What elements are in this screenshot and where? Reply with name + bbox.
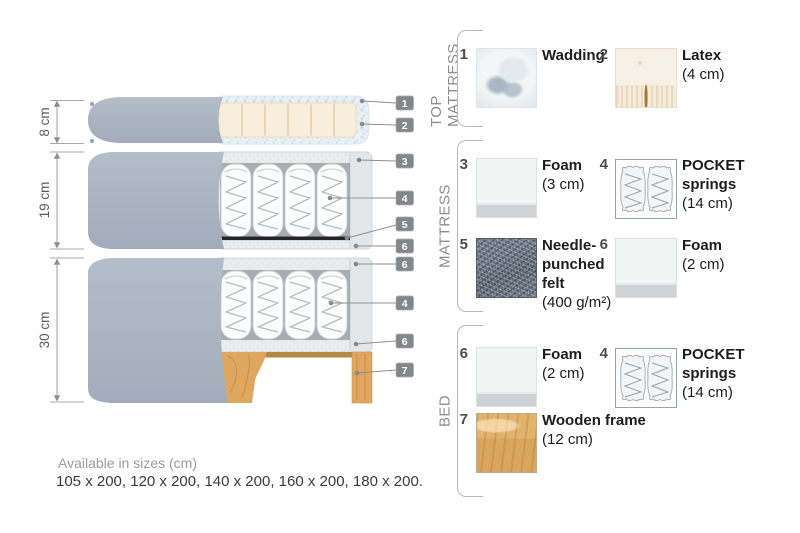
- pocket-springs-drawing: [616, 349, 676, 407]
- svg-text:6: 6: [402, 336, 408, 348]
- pocket-spring: [221, 164, 251, 237]
- legend-item-label: POCKET springs (14 cm): [682, 156, 762, 213]
- mattress-fabric: [88, 152, 224, 249]
- pocket-spring: [285, 164, 315, 237]
- legend-item-number: 6: [448, 345, 468, 362]
- legend-item-number: 5: [448, 236, 468, 253]
- callout-badge-6a: 6: [396, 239, 414, 253]
- wadding-swatch: [476, 48, 537, 108]
- legend-item-number: 1: [448, 46, 468, 63]
- pocket-springs-drawing: [616, 160, 676, 218]
- svg-text:7: 7: [402, 365, 408, 377]
- felt-swatch: [476, 238, 537, 298]
- svg-text:4: 4: [402, 298, 408, 310]
- legend-item-label: POCKET springs (14 cm): [682, 345, 762, 402]
- dimension-19cm: [50, 152, 84, 249]
- legend-item-number: 7: [448, 411, 468, 428]
- mattress-section: [88, 152, 372, 249]
- callout-badge-3: 3: [396, 154, 414, 168]
- wood-rail: [256, 352, 360, 358]
- svg-text:1: 1: [402, 98, 408, 110]
- pocket-spring: [253, 164, 283, 237]
- dimension-label-30cm: 30 cm: [37, 312, 52, 349]
- callout-badge-4b: 4: [396, 296, 414, 310]
- legend-item-number: 4: [588, 345, 608, 362]
- bed-cross-section-diagram: 8 cm 19 cm 30 cm: [0, 0, 440, 533]
- legend-item-label: Wooden frame (12 cm): [542, 411, 712, 449]
- callout-badge-7: 7: [396, 363, 414, 377]
- legend-item-label: Foam (2 cm): [682, 236, 762, 274]
- callout-badge-2: 2: [396, 118, 414, 132]
- legend-item-number: 6: [588, 236, 608, 253]
- foam-edge-band: [350, 259, 371, 351]
- foam-swatch: [615, 238, 677, 298]
- pocket-spring: [317, 164, 347, 237]
- svg-text:2: 2: [402, 120, 408, 132]
- svg-text:6: 6: [402, 241, 408, 253]
- top-mattress-fabric: [88, 97, 223, 143]
- legend-item-number: 4: [588, 156, 608, 173]
- legend-item-label: Wadding: [542, 46, 622, 65]
- legend-item-label: Needle-punched felt (400 g/m²): [542, 236, 622, 312]
- sizes-title: Available in sizes (cm): [58, 455, 197, 471]
- legend-item-number: 3: [448, 156, 468, 173]
- svg-text:3: 3: [402, 156, 408, 168]
- pocket-spring: [285, 271, 315, 339]
- infographic: 8 cm 19 cm 30 cm: [0, 0, 800, 533]
- callout-badge-1: 1: [396, 96, 414, 110]
- legend-item-number: 2: [588, 46, 608, 63]
- svg-text:5: 5: [402, 219, 408, 231]
- callout-badges: 1 2 3 4 5 6 6 4 6 7: [396, 96, 414, 377]
- foam-swatch: [476, 347, 537, 407]
- foam-swatch: [476, 158, 537, 218]
- felt-layer: [220, 237, 350, 241]
- pocket-spring: [253, 271, 283, 339]
- pocket-springs-swatch: [615, 348, 677, 408]
- svg-text:4: 4: [402, 193, 408, 205]
- callout-badge-4: 4: [396, 191, 414, 205]
- svg-text:6: 6: [402, 259, 408, 271]
- fabric-button: [90, 139, 94, 143]
- legend-item-label: Foam (3 cm): [542, 156, 622, 194]
- pocket-spring: [221, 271, 251, 339]
- pocket-springs-swatch: [615, 159, 677, 219]
- dimension-8cm: [50, 101, 84, 144]
- dimension-label-19cm: 19 cm: [37, 182, 52, 219]
- latex-swatch: [615, 48, 677, 108]
- legend-item-label: Foam (2 cm): [542, 345, 622, 383]
- callout-badge-6c: 6: [396, 334, 414, 348]
- legend-item-label: Latex (4 cm): [682, 46, 762, 84]
- wood-swatch: [476, 413, 537, 473]
- bed-section: [88, 258, 372, 403]
- wood-leg-right: [352, 352, 372, 403]
- foam-edge-band: [350, 153, 371, 248]
- bed-fabric-skirt: [88, 258, 228, 403]
- top-mattress-section: [88, 96, 369, 144]
- dimension-label-8cm: 8 cm: [37, 107, 52, 136]
- callout-badge-6b: 6: [396, 257, 414, 271]
- sizes-list: 105 x 200, 120 x 200, 140 x 200, 160 x 2…: [56, 473, 423, 490]
- callout-badge-5: 5: [396, 217, 414, 231]
- group-label-top-mattress: TOP MATTRESS: [436, 30, 454, 127]
- dimension-30cm: [50, 258, 84, 402]
- fabric-button: [90, 102, 94, 106]
